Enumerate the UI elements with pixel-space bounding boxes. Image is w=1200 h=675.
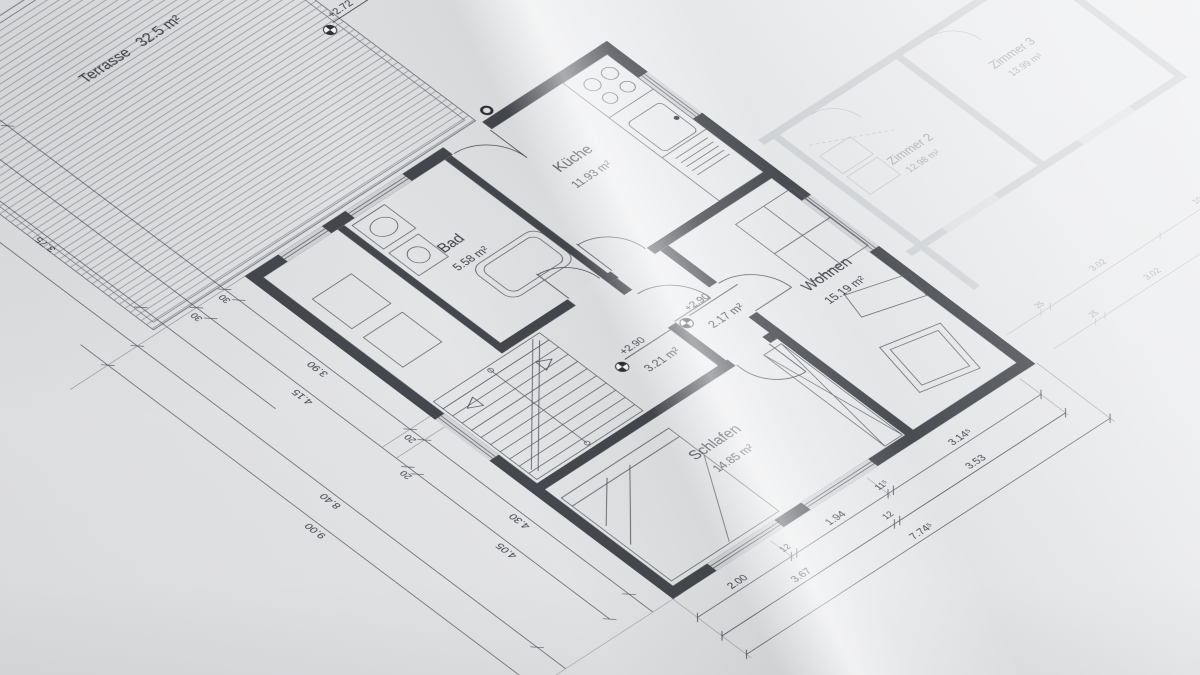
dim-label: 9.00 bbox=[302, 521, 329, 540]
underlay-dim: 10 bbox=[1190, 196, 1200, 206]
wardrobe bbox=[764, 344, 902, 447]
wohnen-furniture bbox=[715, 186, 1010, 400]
dim-label: 3.67 bbox=[788, 566, 815, 584]
dim-label: 2.00 bbox=[724, 573, 751, 591]
window bbox=[707, 520, 784, 571]
kueche-door bbox=[575, 221, 656, 278]
stair-arrow bbox=[462, 397, 484, 412]
staircase bbox=[434, 333, 643, 480]
sink bbox=[627, 102, 730, 176]
flur-level-value: +2.90 bbox=[681, 291, 713, 313]
underlay-dim: 3.02 bbox=[1141, 266, 1163, 281]
dim-label: 3.90 bbox=[305, 359, 332, 378]
wall-ring-symbol bbox=[479, 105, 494, 115]
dim-label: 3.53 bbox=[962, 453, 989, 471]
wohnen-door bbox=[708, 259, 793, 318]
dim-label: 30 bbox=[188, 311, 204, 323]
dim-label: 20 bbox=[402, 433, 418, 445]
dim-label: 12 bbox=[880, 509, 896, 521]
dim-label: 4.05 bbox=[493, 541, 520, 560]
dimension-chains-bottom: 2.00 12 1.94 11⁵ 3.14⁵ 3.67 12 3.53 7.74… bbox=[670, 361, 1119, 660]
dim-label: 1.94 bbox=[822, 509, 849, 527]
dim-label: 12 bbox=[777, 542, 793, 554]
dim-label: 7.74⁵ bbox=[907, 521, 937, 542]
dim-label: 20 bbox=[398, 469, 414, 481]
diele-level-value: +2.90 bbox=[617, 335, 649, 357]
table bbox=[880, 323, 981, 392]
underlay-window bbox=[1077, 106, 1135, 145]
room-labels: Küche 11.93 m² Bad 5.58 m² Wohnen 15.19 … bbox=[418, 105, 943, 477]
dim-label: 4.15 bbox=[289, 387, 316, 406]
photo-of-floor-plan: Zimmer 2 12.98 m² Zimmer 3 13.99 m² 25 3… bbox=[0, 0, 1200, 675]
window bbox=[638, 72, 702, 119]
window bbox=[435, 414, 499, 461]
dim-label: 8.40 bbox=[317, 491, 344, 510]
dim-label: 30 bbox=[217, 293, 233, 305]
dim-label: 4.30 bbox=[506, 511, 533, 530]
flur-area-value: 2.17 m² bbox=[706, 302, 748, 330]
diele-area-value: 3.21 m² bbox=[642, 346, 684, 374]
dim-label: 3.14⁵ bbox=[945, 427, 975, 448]
bad-label: Bad bbox=[434, 232, 469, 256]
window bbox=[801, 459, 878, 510]
